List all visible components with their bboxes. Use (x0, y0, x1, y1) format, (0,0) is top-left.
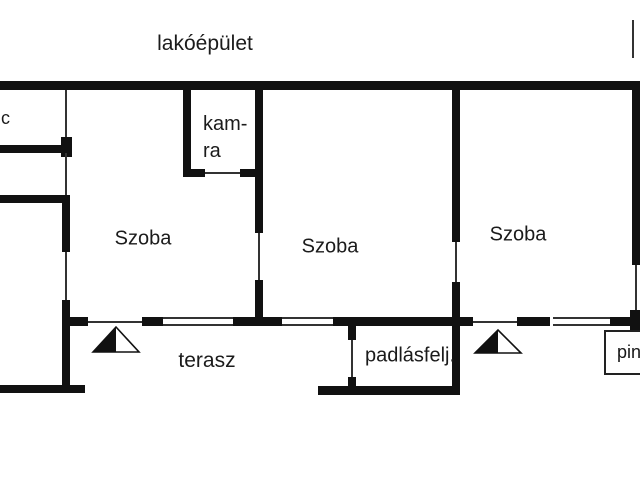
door-opening-terasz-left (88, 321, 142, 323)
room-label-kamra-line2: ra (203, 138, 247, 165)
room-label-kamra: kam- ra (203, 111, 247, 165)
wall-kamra-left (183, 90, 191, 177)
wall-left-mid (62, 195, 70, 252)
entrance-arrow-icon (90, 324, 142, 356)
room-label-szoba-2: Szoba (302, 236, 359, 259)
wall-bottom-seg4 (333, 317, 473, 326)
door-opening-right-wall (635, 265, 637, 310)
label-terasz: terasz (178, 349, 235, 373)
room-label-szoba-3: Szoba (490, 224, 547, 247)
wall-bottom-seg3 (233, 317, 282, 326)
room-label-kamra-line1: kam- (203, 111, 247, 138)
door-opening-terasz-right (473, 321, 517, 323)
wall-wc-bottom (0, 145, 62, 153)
wall-left-bottom (0, 385, 85, 393)
window-szoba2-bottom-line (282, 324, 333, 326)
wall-top (0, 81, 640, 90)
wall-bottom-stub (70, 317, 88, 326)
window-szoba1-bottom-line (163, 324, 233, 326)
wall-left-h2 (0, 195, 70, 203)
door-opening-szoba1-szoba2 (258, 233, 260, 280)
wall-left-lower (62, 300, 70, 390)
wall-bottom-seg2 (142, 317, 163, 326)
window-szoba2-top-line (282, 317, 333, 319)
wall-bottom-seg6 (610, 317, 640, 326)
wall-bottom-seg5 (517, 317, 550, 326)
wall-szoba2-szoba3-lower (452, 282, 460, 322)
door-opening-wc (65, 90, 67, 137)
wall-right-upper (632, 90, 640, 265)
pince-annex-box: pin (604, 330, 640, 375)
wall-szoba2-szoba3-upper (452, 90, 460, 242)
room-label-szoba-1: Szoba (115, 228, 172, 251)
window-szoba3-bottom-line (553, 324, 610, 326)
label-pince: pin (606, 342, 640, 363)
wall-szoba1-szoba2-upper (255, 90, 263, 233)
window-szoba3-top-line (553, 317, 610, 319)
wall-kamra-bottom-left (183, 169, 205, 177)
door-opening-padlas (351, 340, 353, 377)
floor-plan: lakóépület c kam- ra Szoba Szoba Szoba t… (0, 0, 640, 480)
door-opening-kamra (205, 172, 240, 174)
wall-padlas-bottom (318, 386, 460, 395)
building-label: lakóépület (157, 32, 253, 56)
door-opening-szoba2-szoba3 (455, 242, 457, 282)
window-szoba1-top-line (163, 317, 233, 319)
label-padlasfeljaro: padlásfelj. (365, 345, 455, 368)
wall-padlas-left-stub-top (348, 326, 356, 340)
door-opening-left-mid (65, 153, 67, 195)
room-label-wc: c (1, 108, 10, 129)
entrance-arrow-icon (472, 327, 524, 357)
wall-szoba1-szoba2-lower (255, 280, 263, 322)
window-left-wall (65, 252, 67, 300)
boundary-line-top-right (632, 20, 634, 58)
